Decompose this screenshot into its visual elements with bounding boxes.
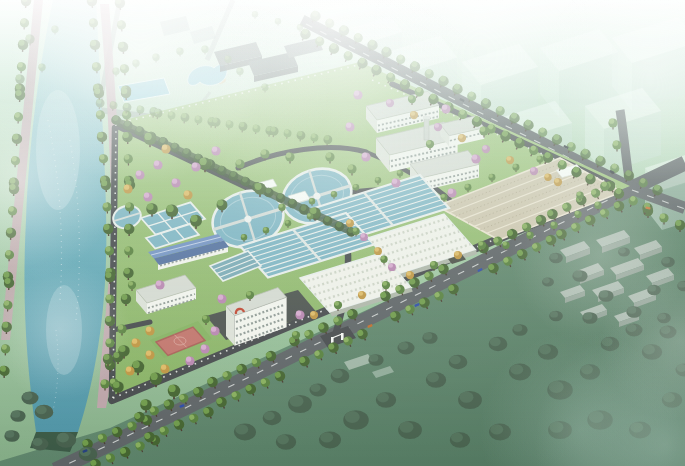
aerial-rendering-canvas	[0, 0, 685, 466]
treatment-plant-aerial-view	[0, 0, 685, 466]
haze-fog-layer	[0, 0, 685, 466]
